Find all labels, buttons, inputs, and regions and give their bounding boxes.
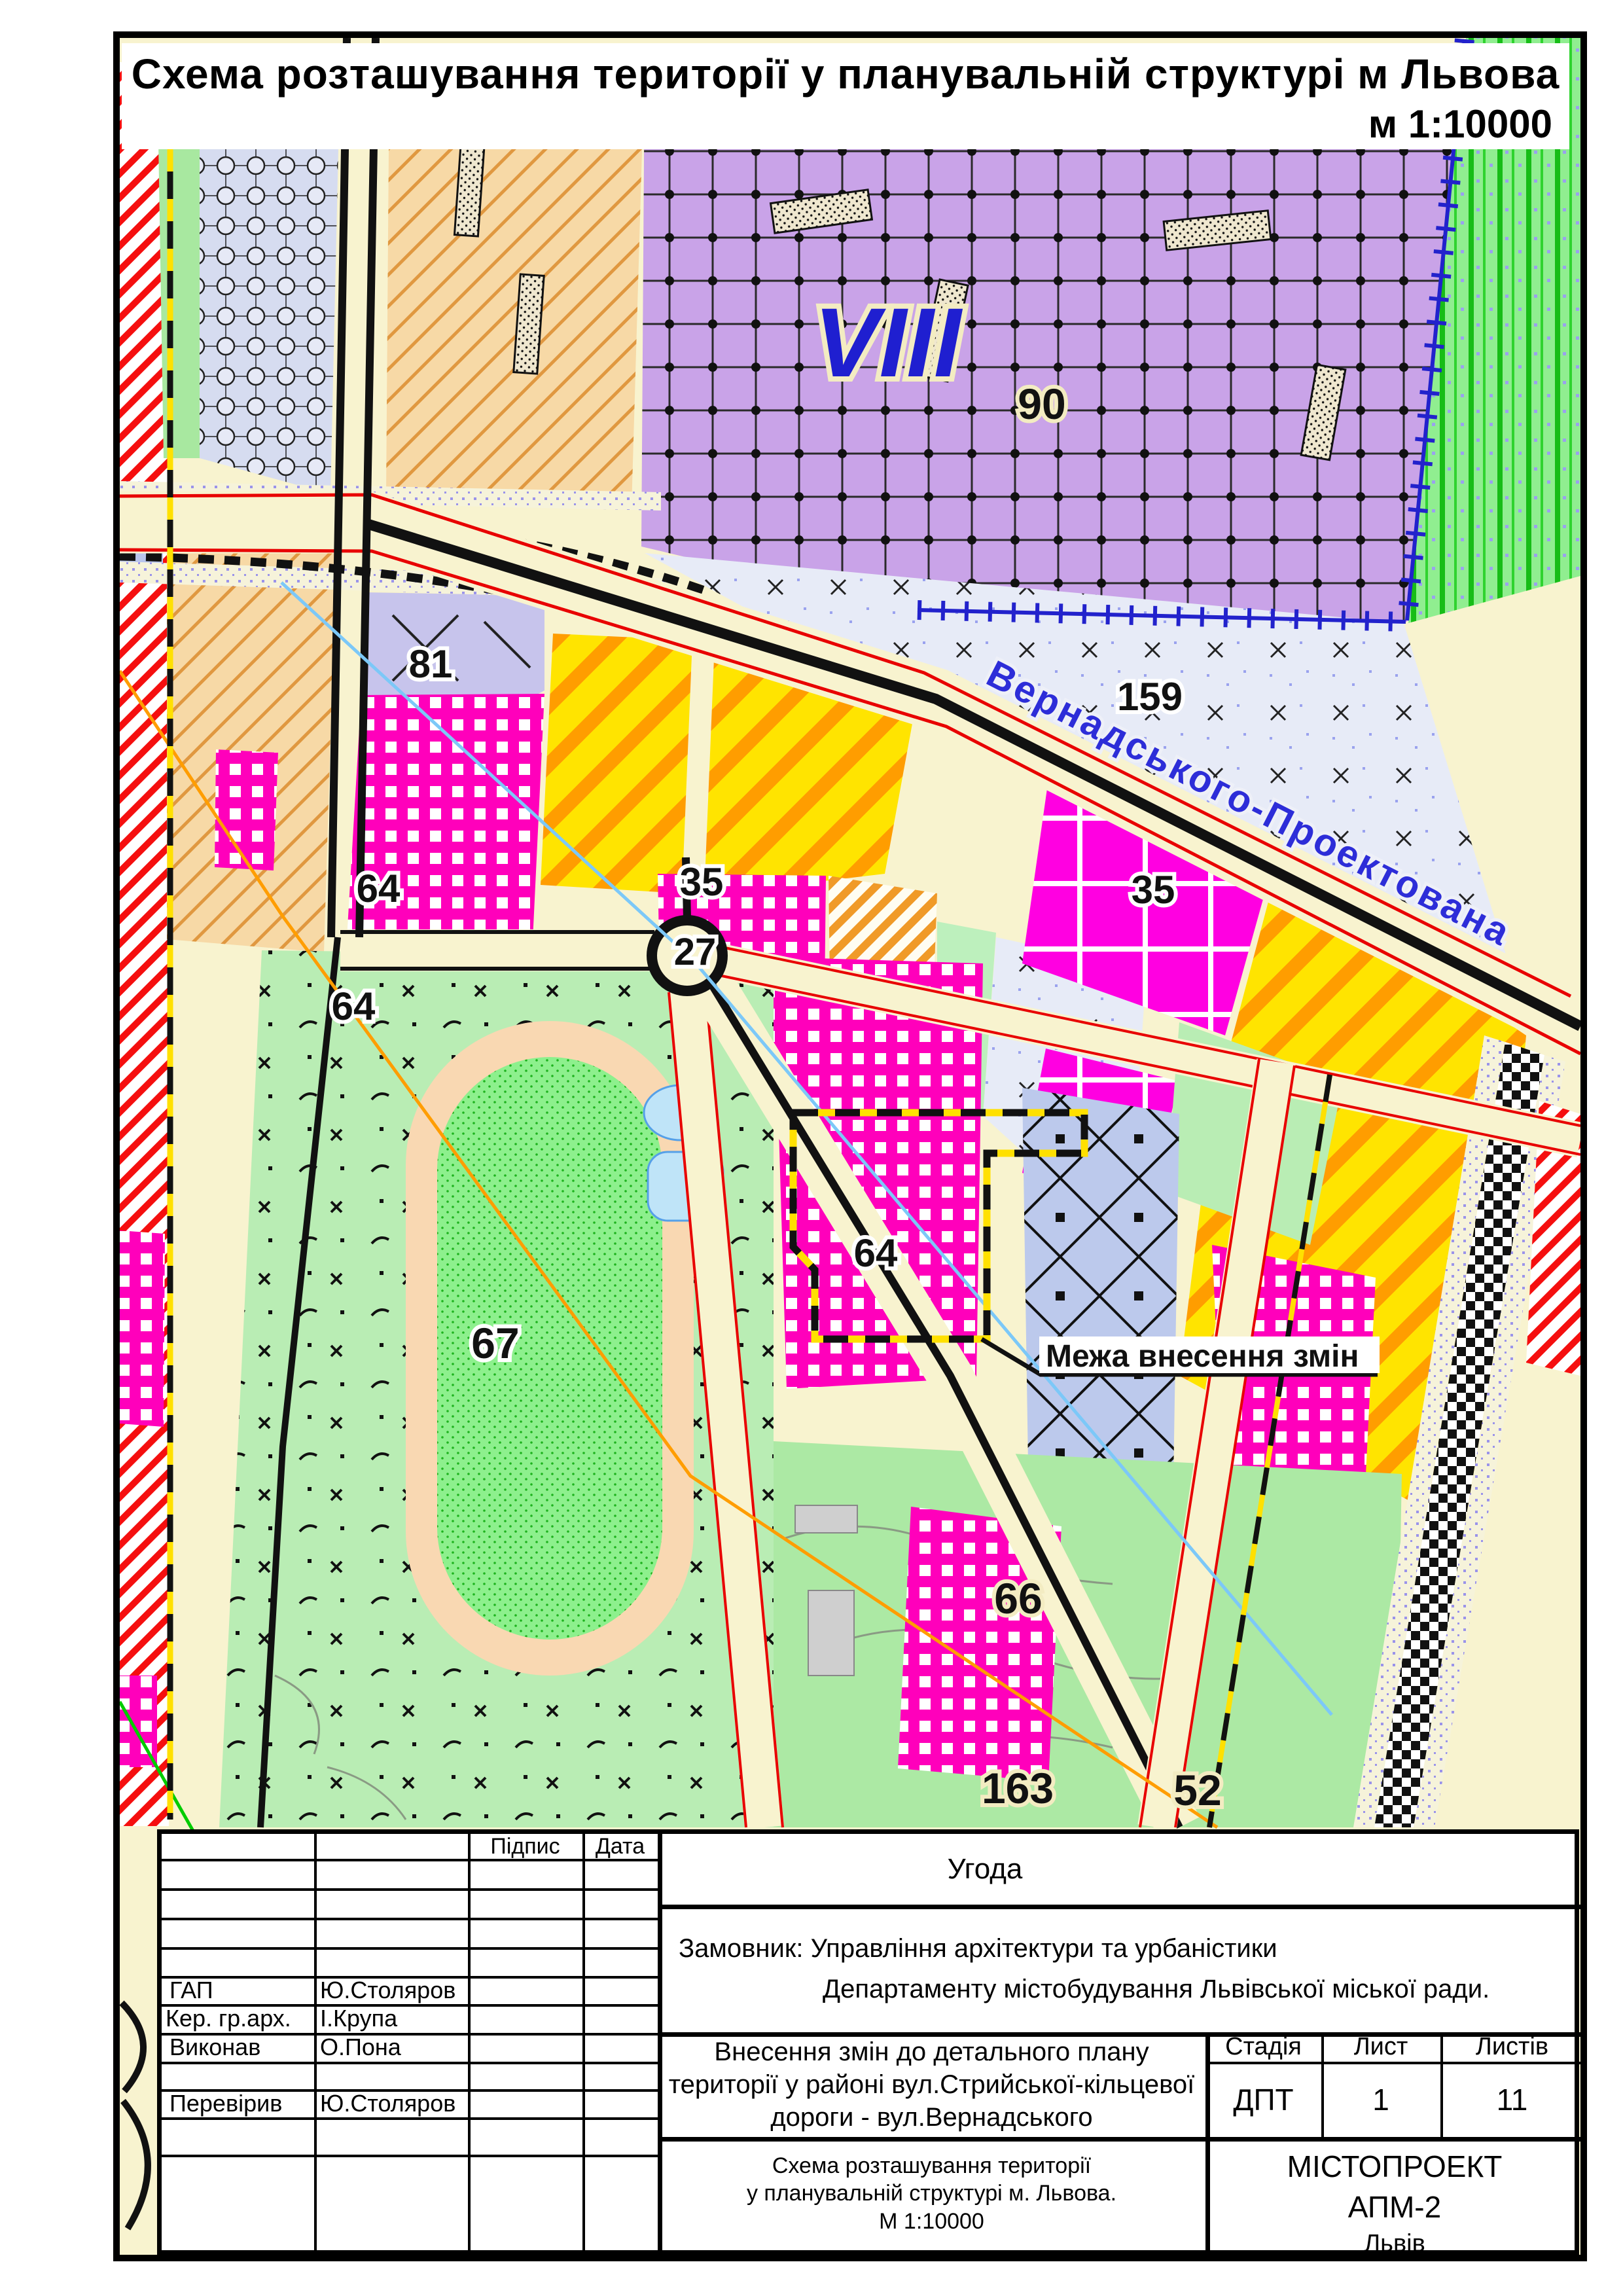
title-box: Схема розташування території у плануваль… [122,43,1569,149]
zone-mag-left2 [120,1676,157,1767]
sheets-value: 11 [1440,2062,1584,2137]
sheets-header: Листів [1440,2032,1584,2062]
name-cell: І.Крупа [320,2004,467,2033]
title-block: Підпис Дата ГАП Ю.Столяров Кер. гр.арх. … [157,1829,1579,2255]
organization-cell: МІСТОПРОЕКТ АПМ-2 Львів [1205,2137,1584,2250]
stage-header: Стадія [1205,2032,1321,2062]
boundary-label: Межа внесення змін [1046,1339,1359,1374]
project-line-3: дороги - вул.Вернадського [770,2101,1092,2134]
tb-line [162,2117,662,2120]
zone-label-13: 52 [1173,1766,1221,1814]
role-cell: Кер. гр.арх. [166,2004,313,2033]
zone-mag-left [120,1230,165,1427]
zone-label-9: 67 [471,1319,519,1367]
building-gray-1 [795,1505,857,1533]
sheet-value: 1 [1321,2062,1440,2137]
stage-value: ДПТ [1205,2062,1321,2137]
name-cell: Ю.Столяров [320,1976,467,2004]
project-name-cell: Внесення змін до детального плану терито… [658,2032,1205,2137]
zone-label-8: 35 [1132,868,1175,912]
zone-label-11: 66 [994,1574,1042,1623]
tb-line [314,1834,317,2250]
client-line-1: Замовник: Управління архітектури та урба… [679,1932,1575,1965]
role-cell: ГАП [169,1976,313,2004]
zone-label-12: 163 [982,1764,1054,1812]
project-line-1: Внесення змін до детального плану [714,2036,1149,2068]
tb-line [162,1918,662,1920]
agreement-cell: Угода [658,1834,1312,1905]
zone-label-7: 27 [674,931,717,973]
sheet-title-line-1: Схема розташування території [772,2152,1091,2180]
sheet-header: Лист [1321,2032,1440,2062]
sheet-title-cell: Схема розташування території у плануваль… [658,2137,1205,2250]
tb-line [162,1859,662,1861]
sheet-title-line-2: у планувальній структурі м. Львова. [747,2179,1116,2208]
zone-label-4: 64 [357,867,401,910]
tb-line [658,1905,1584,1909]
name-cell: Ю.Столяров [320,2089,467,2117]
org-line-2: АПМ-2 [1348,2187,1441,2227]
org-line-3: Львів [1364,2227,1425,2250]
sheet-title-line-3: М 1:10000 [879,2208,984,2236]
date-header: Дата [582,1834,658,1859]
zone-label-1: 90 [1018,380,1065,428]
zone-label-0: VIII [813,287,963,397]
role-cell: Перевірив [169,2089,313,2117]
tb-line [162,2062,662,2064]
zone-label-3: 81 [409,642,453,686]
zone-label-5: 64 [332,984,376,1028]
signature-header: Підпис [468,1834,582,1859]
name-cell: О.Пона [320,2033,467,2062]
zone-label-10: 64 [854,1231,898,1275]
building-gray-2 [808,1590,854,1676]
project-line-2: території у районі вул.Стрийської-кільце… [669,2068,1194,2101]
zone-label-6: 35 [680,860,724,904]
page-title: Схема розташування території у плануваль… [122,50,1569,98]
tb-line [582,1834,585,2250]
drawing-sheet: VIII9015981646435273567646616352Вернадсь… [0,0,1623,2296]
zone-yellow1 [541,634,692,893]
zone-mag-patch [215,749,278,870]
scale-label: м 1:10000 [1368,101,1552,147]
org-line-1: МІСТОПРОЕКТ [1287,2146,1503,2187]
client-line-2: Департаменту містобудування Львівської м… [823,1973,1582,2005]
role-cell: Виконав [169,2033,313,2062]
tb-line [468,1834,471,2250]
tb-line [162,1888,662,1891]
tb-line [162,1947,662,1950]
tb-line [162,2155,662,2157]
zone-label-2: 159 [1117,675,1183,719]
